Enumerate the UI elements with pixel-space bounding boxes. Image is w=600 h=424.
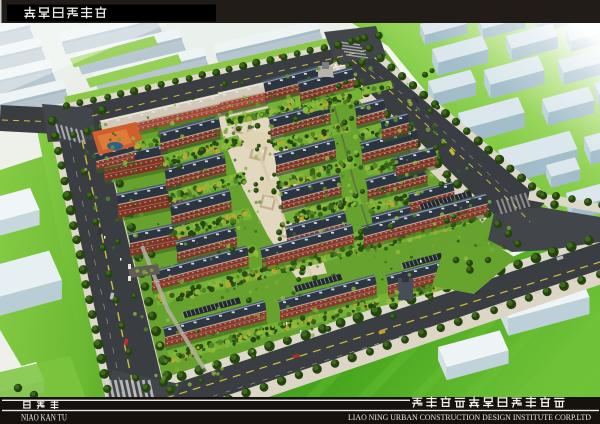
svg-text:LIAO NING URBAN CONSTRUCTION D: LIAO NING URBAN CONSTRUCTION DESIGN INST…	[348, 412, 591, 422]
svg-text:NIAO KAN TU: NIAO KAN TU	[21, 413, 67, 423]
